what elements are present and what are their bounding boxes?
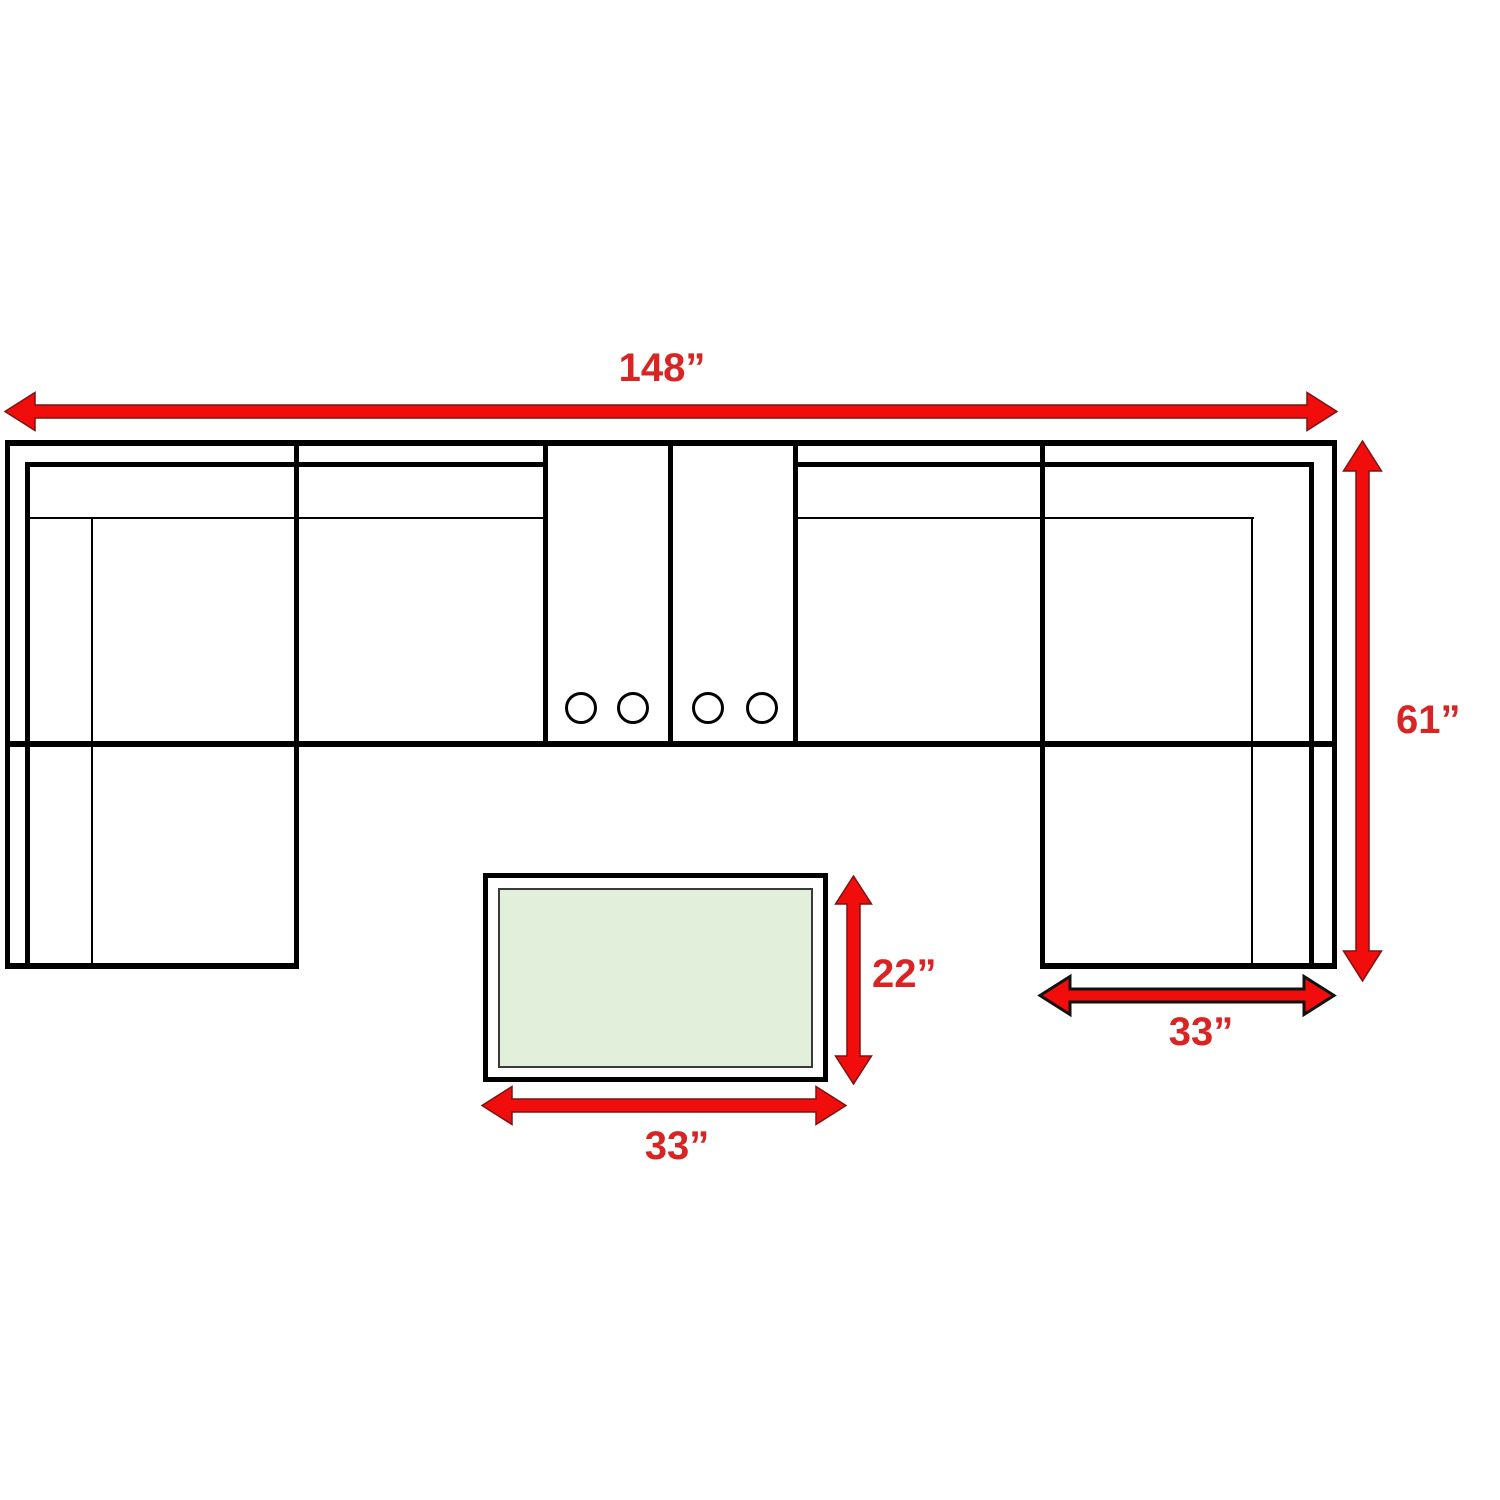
sectional-width-label: 148” — [587, 348, 737, 388]
sectional-dimension-diagram: 148” 61” 22” 33” 33” — [0, 0, 1500, 1500]
width-148-arrow — [5, 393, 1337, 431]
corner-width-33-arrow — [1040, 977, 1334, 1015]
sectional-depth-label: 61” — [1396, 700, 1500, 740]
table-depth-label: 22” — [872, 954, 982, 994]
depth-61-arrow — [1344, 441, 1382, 981]
corner-width-label: 33” — [1131, 1012, 1271, 1052]
dimension-arrows-layer — [0, 0, 1500, 1500]
table-width-label: 33” — [607, 1126, 747, 1166]
table-depth-22-arrow — [836, 876, 872, 1084]
table-width-33-arrow — [482, 1087, 846, 1125]
